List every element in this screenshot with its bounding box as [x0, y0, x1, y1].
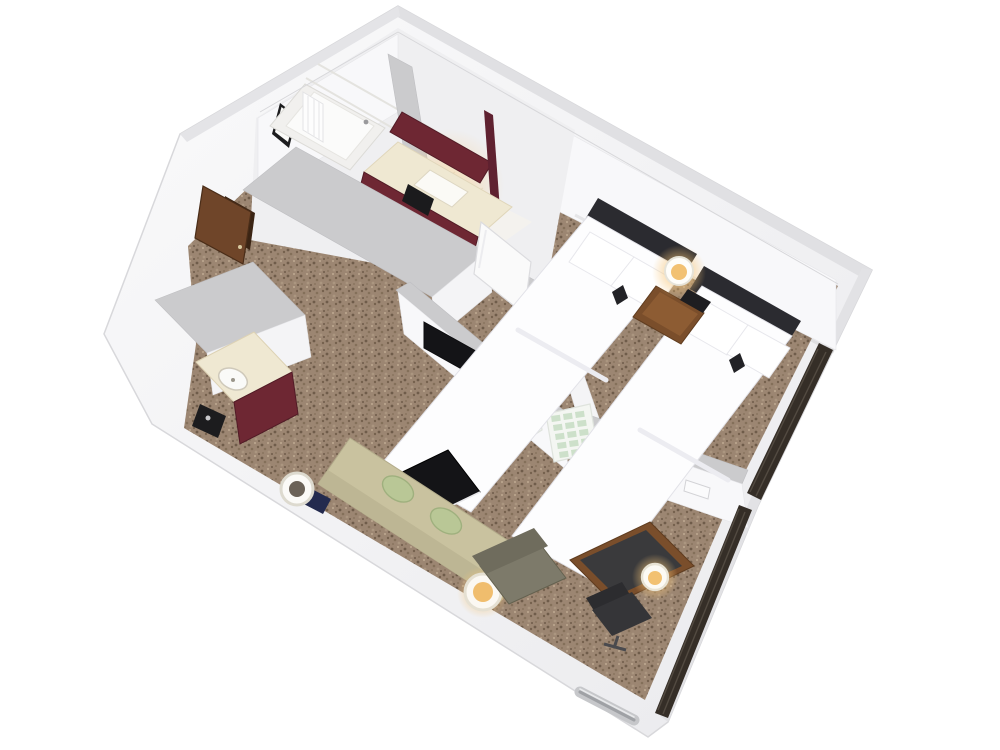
coffee-maker-dial — [206, 416, 211, 421]
floorplan-svg — [0, 0, 1000, 750]
tub-faucet — [364, 120, 369, 125]
floorplan-render — [0, 0, 1000, 750]
wet-bar-drain — [231, 378, 235, 382]
entry-door-knob — [238, 245, 242, 249]
desk-lamp-bulb — [648, 571, 662, 585]
sofa-lamp-left — [281, 473, 313, 505]
nightstand-lamp-bulb — [671, 264, 687, 280]
